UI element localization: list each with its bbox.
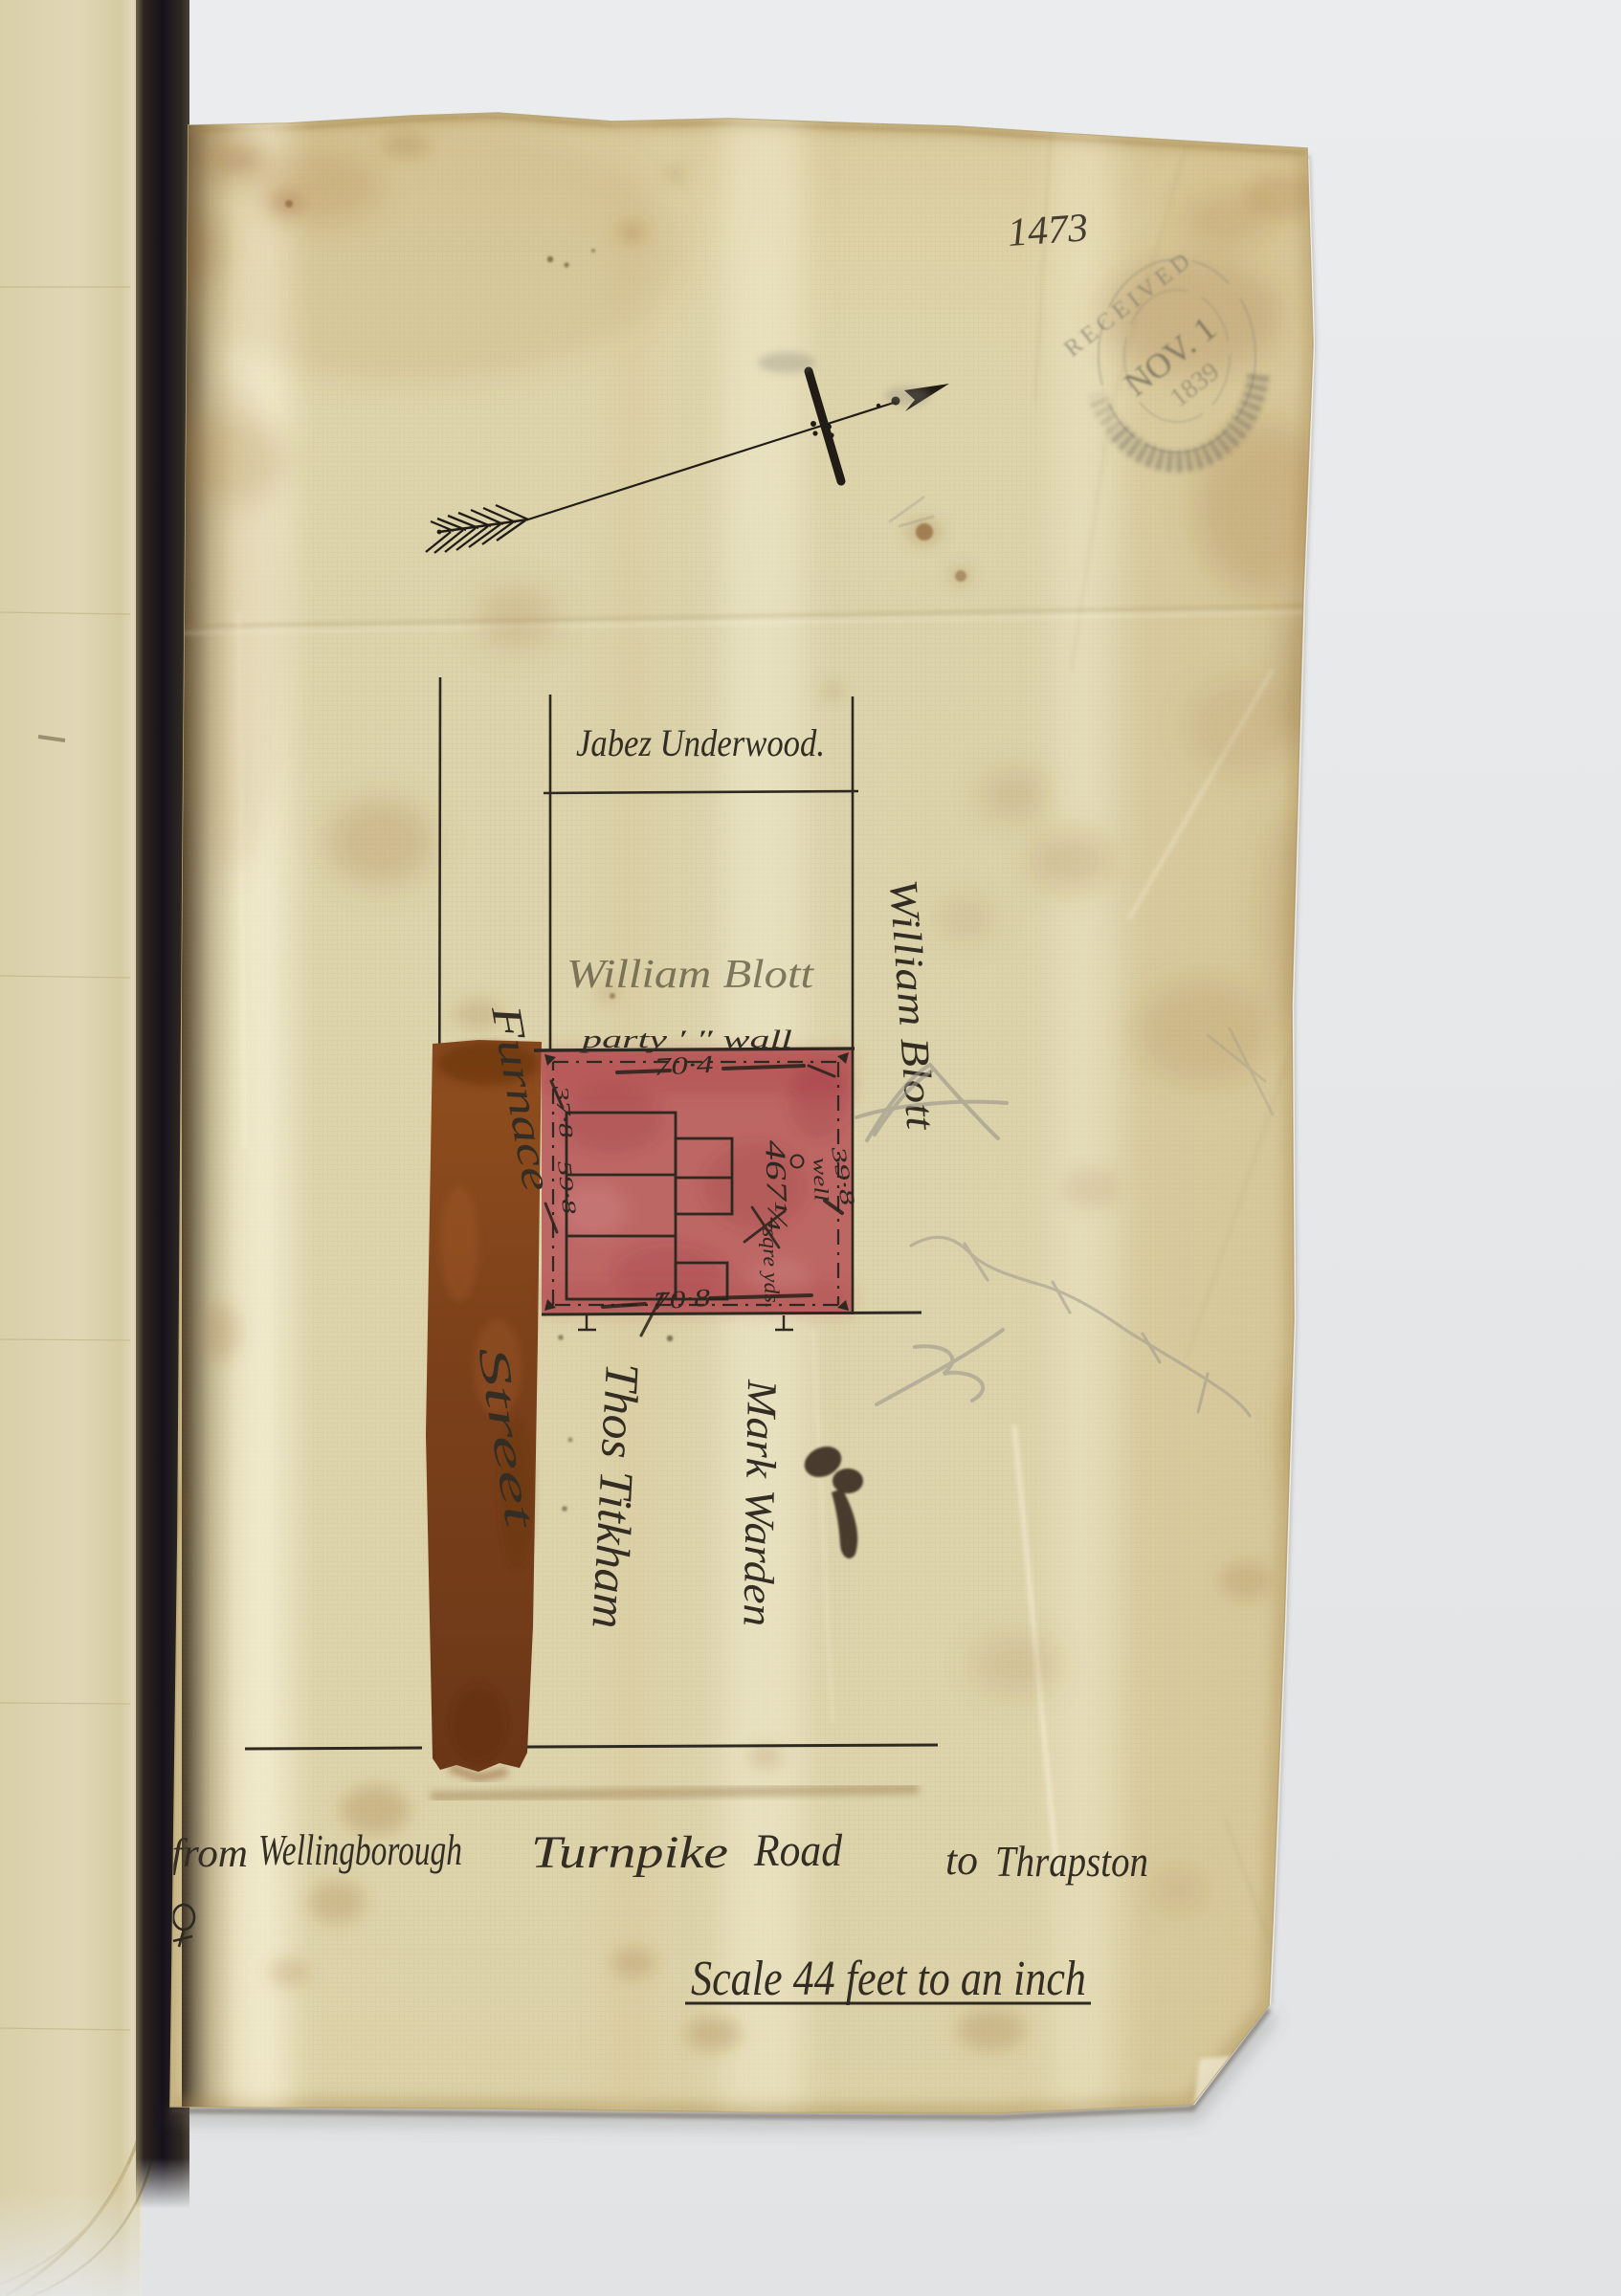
svg-text:party ′ ″ wall: party ′ ″ wall	[579, 1026, 792, 1053]
svg-text:Road: Road	[753, 1825, 843, 1876]
svg-text:Thrapston: Thrapston	[995, 1837, 1148, 1886]
svg-text:to: to	[945, 1837, 978, 1884]
svg-text:William Blott: William Blott	[566, 953, 815, 997]
svg-text:70·8: 70·8	[652, 1284, 711, 1315]
svg-text:from: from	[171, 1832, 248, 1876]
svg-text:70·4: 70·4	[654, 1050, 714, 1081]
svg-text:sqre yds.: sqre yds.	[758, 1227, 785, 1309]
svg-text:1473: 1473	[1006, 206, 1089, 255]
svg-text:well: well	[809, 1157, 833, 1202]
svg-text:Wellingborough: Wellingborough	[258, 1825, 462, 1874]
svg-text:467¼: 467¼	[759, 1139, 793, 1231]
svg-text:Scale 44 feet to an inch: Scale 44 feet to an inch	[691, 1952, 1086, 2006]
svg-text:Jabez Underwood.: Jabez Underwood.	[576, 721, 825, 764]
svg-text:Mark Warden: Mark Warden	[734, 1379, 786, 1627]
svg-text:Turnpike: Turnpike	[531, 1827, 728, 1878]
